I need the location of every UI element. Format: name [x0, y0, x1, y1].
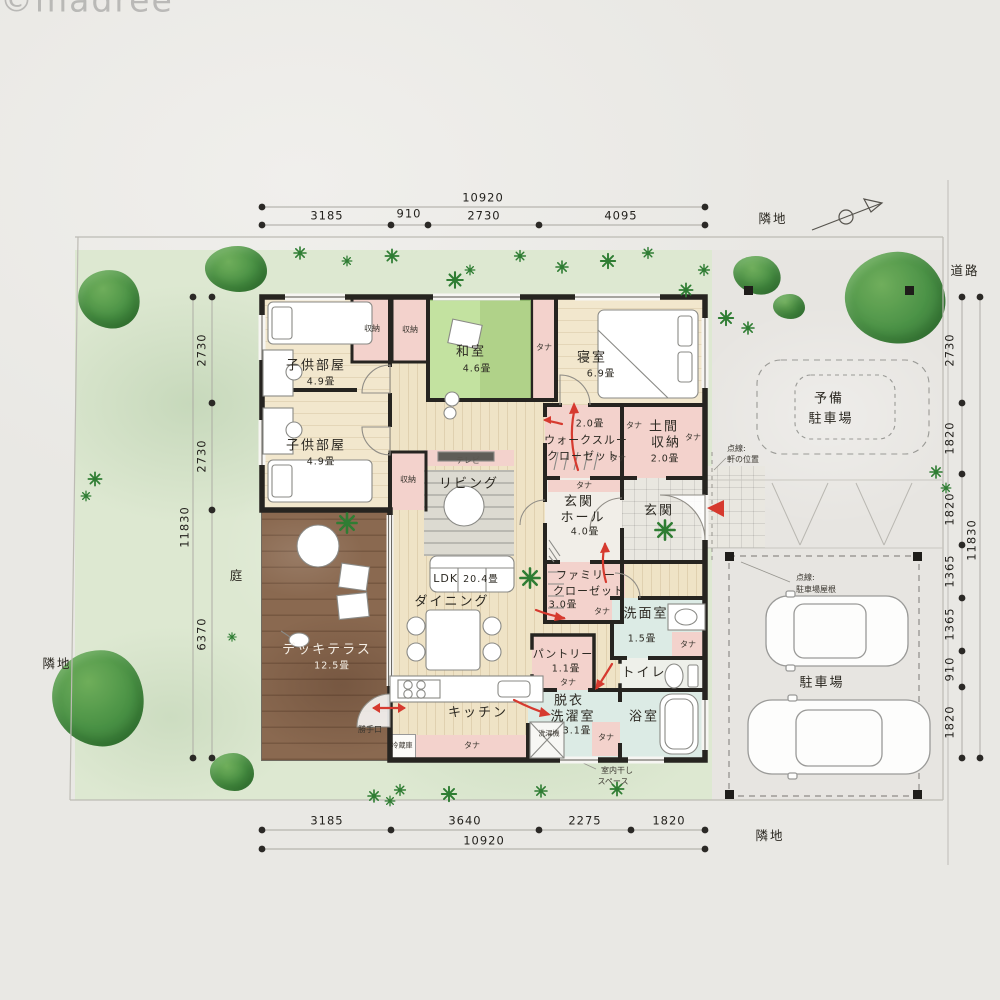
- ldk-size: 20.4畳: [463, 574, 499, 585]
- kitchen-name: キッチン: [448, 707, 508, 720]
- washitsu-size: 4.6畳: [463, 364, 492, 374]
- eaves-note-line1: 点線:: [727, 445, 746, 453]
- toilet-name: トイレ: [621, 667, 666, 680]
- bedroom-size: 6.9畳: [587, 369, 616, 379]
- katteguchi-label: 勝手口: [358, 726, 382, 734]
- dim-right-seg3: 1820: [944, 492, 956, 525]
- dim-right-seg7: 1820: [944, 705, 956, 738]
- senmen-tana-label: タナ: [680, 641, 696, 649]
- dim-bottom-total: 10920: [463, 835, 505, 847]
- bedroom-name: 寝室: [577, 352, 607, 365]
- floor-plan-sheet: 10920 3185 910 2730 4095 3185 3640 2275 …: [0, 0, 1000, 1000]
- dim-left-seg2: 2730: [196, 439, 208, 472]
- dim-right-seg5: 1365: [944, 607, 956, 640]
- datsui-line2: 洗濯室: [550, 711, 595, 724]
- neighbor-label-bottom: 隣地: [755, 830, 784, 843]
- dim-bottom-seg1: 3185: [310, 815, 343, 827]
- ldk-name: LDK: [433, 572, 458, 585]
- garden-label: 庭: [230, 570, 245, 583]
- famclo-size: 3.0畳: [549, 600, 578, 610]
- kitchen-tana-label: タナ: [464, 742, 480, 750]
- dim-right-seg4: 1365: [944, 554, 956, 587]
- genkan-name: 玄関: [644, 505, 674, 518]
- approach-tiles: [705, 466, 765, 548]
- indoor-dry-line2: スペース: [597, 778, 628, 786]
- closet-b-label: 収納: [402, 326, 418, 334]
- kids2-size: 4.9畳: [307, 457, 336, 467]
- doma-size: 2.0畳: [651, 454, 680, 464]
- kids1-size: 4.9畳: [307, 377, 336, 387]
- dim-top-seg2: 910: [397, 208, 422, 220]
- ldk-label: LDK 20.4畳: [433, 569, 499, 585]
- parking-label: 駐車場: [799, 677, 844, 690]
- kids2-name: 子供部屋: [286, 440, 346, 453]
- spare-parking-line2: 駐車場: [808, 413, 853, 426]
- wtc-tana-label: タナ: [610, 455, 626, 463]
- deck-size: 12.5畳: [314, 661, 350, 671]
- hall-tana-label: タナ: [576, 482, 592, 490]
- neighbor-label-top: 隣地: [758, 213, 787, 226]
- dim-right-seg6: 910: [944, 657, 956, 682]
- deck-name: デッキテラス: [282, 644, 372, 657]
- dim-right-seg2: 1820: [944, 421, 956, 454]
- washitsu-name: 和室: [456, 346, 486, 359]
- bedroom-tana-label: タナ: [536, 344, 552, 352]
- road-label: 道路: [950, 265, 979, 278]
- closet-c-label: 収納: [400, 476, 416, 484]
- wtc-line1: ウォークスルー: [544, 435, 628, 446]
- senmen-name: 洗面室: [623, 608, 668, 621]
- doma-line2: 収納: [651, 437, 681, 450]
- pantry-size: 1.1畳: [552, 664, 581, 674]
- bath-floor: [620, 690, 705, 760]
- datsui-tana-label: タナ: [598, 734, 614, 742]
- doma-tana-label-1: タナ: [626, 422, 642, 430]
- washer-label: 洗濯機: [539, 731, 560, 738]
- dim-top-seg3: 2730: [467, 210, 500, 222]
- hall-line1: 玄関: [564, 496, 594, 509]
- bath-name: 浴室: [629, 711, 659, 724]
- dim-bottom-seg4: 1820: [652, 815, 685, 827]
- fridge-label: 冷蔵庫: [392, 743, 413, 750]
- datsui-size: 3.1畳: [563, 726, 592, 736]
- living-name: リビング: [439, 478, 499, 491]
- indoor-dry-line1: 室内干し: [601, 767, 633, 775]
- dim-left-seg3: 6370: [196, 617, 208, 650]
- famclo-tana-label: タナ: [594, 608, 610, 616]
- famclo-line1: ファミリー: [556, 570, 616, 581]
- dim-bottom-seg2: 3640: [448, 815, 481, 827]
- dim-right-seg1: 2730: [944, 333, 956, 366]
- dim-right-total: 11830: [966, 519, 978, 561]
- eaves-note-line2: 軒の位置: [727, 456, 759, 464]
- famclo-line2: クローゼット: [553, 586, 625, 597]
- roof-note-line1: 点線:: [796, 574, 815, 582]
- tree: [773, 294, 805, 319]
- deck-terrace-floor: [262, 510, 390, 760]
- neighbor-label-left: 隣地: [42, 658, 71, 671]
- closet-a-label: 収納: [364, 325, 380, 333]
- pantry-name: パントリー: [533, 649, 594, 660]
- tv-label: テレビ: [456, 457, 480, 465]
- datsui-line1: 脱衣: [554, 695, 584, 708]
- dim-left-seg1: 2730: [196, 333, 208, 366]
- watermark: ©madree: [0, 0, 1000, 20]
- hall-line2: ホール: [560, 512, 605, 525]
- roof-note-line2: 駐車場屋根: [796, 586, 836, 594]
- doma-line1: 土間: [649, 421, 679, 434]
- dim-left-total: 11830: [179, 506, 191, 548]
- doma-tana-label-2: タナ: [685, 434, 701, 442]
- wtc-size: 2.0畳: [576, 419, 605, 429]
- hall-size: 4.0畳: [571, 527, 600, 537]
- dim-top-total: 10920: [462, 192, 504, 204]
- dim-top-seg1: 3185: [310, 210, 343, 222]
- genkan-tile-floor: [622, 478, 705, 562]
- tree: [210, 753, 254, 791]
- dim-bottom-seg3: 2275: [568, 815, 601, 827]
- senmen-size: 1.5畳: [628, 634, 657, 644]
- spare-parking-line1: 予備: [814, 393, 844, 406]
- north-arrow-icon: [812, 199, 882, 230]
- dining-name: ダイニング: [414, 596, 489, 609]
- pantry-tana-label: タナ: [560, 679, 576, 687]
- kids1-name: 子供部屋: [286, 360, 346, 373]
- wtc-line2: クローゼット: [547, 451, 619, 462]
- dim-top-seg4: 4095: [604, 210, 637, 222]
